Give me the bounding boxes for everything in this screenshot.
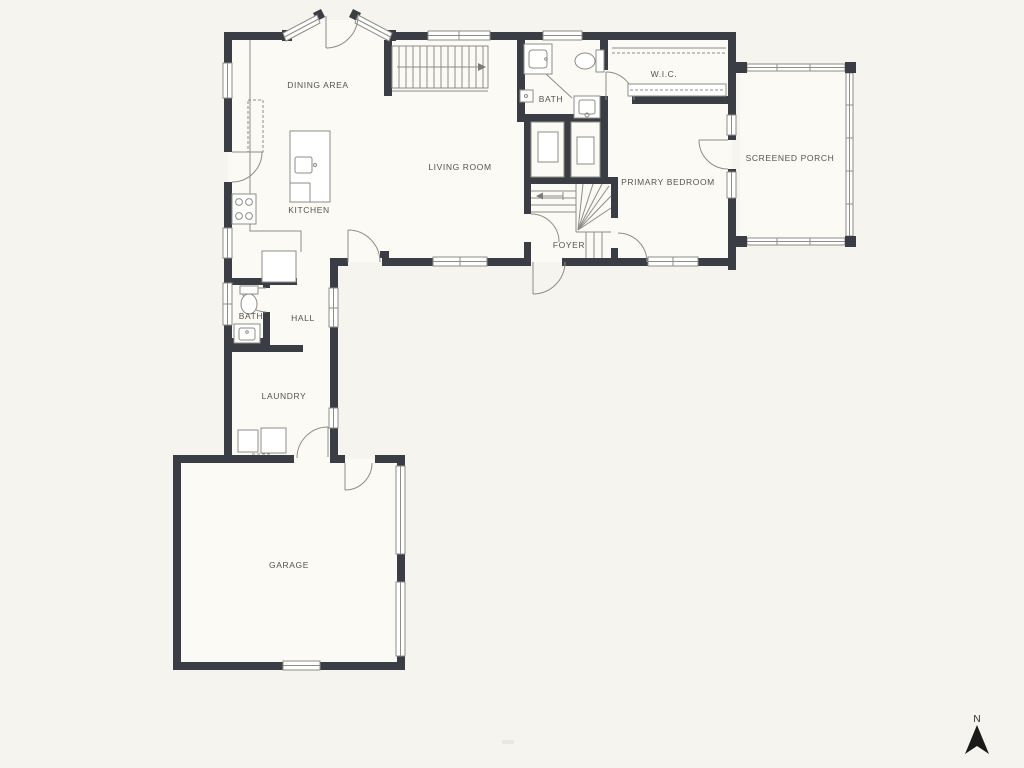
- floor-plan-canvas: DINING AREA KITCHEN LIVING ROOM BATH W.I…: [0, 0, 1024, 768]
- shower: [574, 96, 600, 118]
- room-label-dining: DINING AREA: [287, 80, 348, 90]
- room-label-garage: GARAGE: [269, 560, 309, 570]
- washer: [238, 430, 258, 452]
- dryer: [261, 428, 286, 453]
- wall-sink: [520, 90, 533, 102]
- watermark: [502, 740, 514, 744]
- stove: [232, 194, 256, 224]
- room-label-wic: W.I.C.: [651, 69, 678, 79]
- toilet: [596, 50, 604, 72]
- refrigerator: [262, 251, 296, 282]
- toilet: [240, 286, 258, 294]
- laundry-appliances: [238, 428, 286, 454]
- room-label-kitchen: KITCHEN: [288, 205, 330, 215]
- room-label-hall: HALL: [291, 313, 315, 323]
- room-label-screened-porch: SCREENED PORCH: [746, 153, 835, 163]
- room-label-laundry: LAUNDRY: [262, 391, 307, 401]
- room-label-bath-hall: BATH: [239, 311, 263, 321]
- north-label: N: [973, 714, 980, 725]
- room-label-bath-upper: BATH: [539, 94, 563, 104]
- room-label-living: LIVING ROOM: [428, 162, 491, 172]
- room-label-foyer: FOYER: [553, 240, 585, 250]
- room-label-primary-bedroom: PRIMARY BEDROOM: [621, 177, 715, 187]
- north-arrow-icon: [965, 725, 989, 754]
- compass-north: N: [965, 714, 989, 754]
